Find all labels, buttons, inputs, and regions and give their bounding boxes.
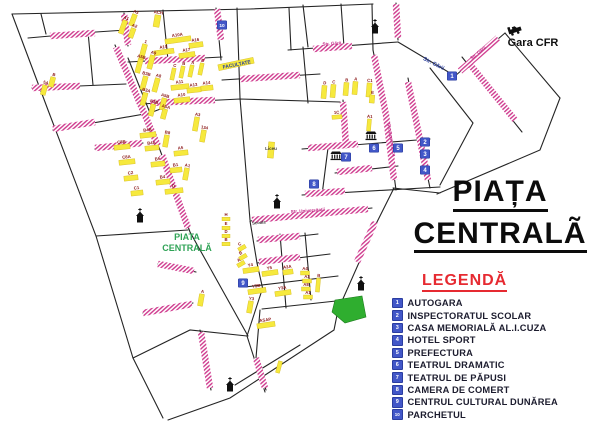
building: B bbox=[315, 273, 321, 292]
building: Y3 bbox=[246, 296, 255, 314]
building-block bbox=[179, 66, 185, 79]
street bbox=[341, 4, 344, 47]
street-name-band bbox=[357, 222, 375, 262]
street-name-band bbox=[305, 191, 345, 194]
building: A1 bbox=[304, 290, 313, 299]
building-label: B8 bbox=[164, 129, 171, 135]
building: A14 bbox=[200, 80, 213, 91]
map-marker-9: 9 bbox=[238, 279, 247, 287]
legend-item-3: 3CASA MEMORIALĂ AL.I.CUZA bbox=[392, 322, 597, 334]
legend: LEGENDĂ 1AUTOGARA2INSPECTORATUL SCOLAR3C… bbox=[392, 272, 597, 421]
building-block bbox=[352, 81, 358, 94]
legend-item-number: 5 bbox=[392, 348, 403, 359]
building-block bbox=[153, 15, 161, 28]
building-block bbox=[165, 188, 183, 195]
map-title: PIAȚA CENTRALÃ bbox=[408, 176, 592, 259]
building-block bbox=[170, 68, 176, 81]
map-marker-5: 5 bbox=[393, 144, 402, 152]
building-block bbox=[160, 109, 167, 120]
street-name-band bbox=[50, 33, 95, 36]
theater-column bbox=[374, 135, 375, 139]
legend-item-number: 10 bbox=[392, 409, 403, 420]
church-roof bbox=[136, 212, 144, 217]
building: A bbox=[352, 76, 359, 95]
building-label: D bbox=[224, 229, 227, 234]
legend-item-label: PREFECTURA bbox=[408, 348, 474, 358]
building: 134 bbox=[198, 124, 209, 142]
building: C2 bbox=[123, 170, 138, 182]
building: A16 bbox=[188, 36, 203, 48]
building-label: C bbox=[173, 63, 177, 69]
street-name-band bbox=[343, 102, 346, 146]
building: C1 bbox=[130, 185, 143, 196]
building-label: B bbox=[182, 61, 186, 67]
title-line-1: PIAȚA bbox=[453, 176, 548, 212]
building: A10A bbox=[164, 31, 191, 45]
building-label: A14 bbox=[202, 80, 211, 86]
building: A bbox=[188, 60, 195, 78]
map-document: A1A3A2ACHA10AA16A10A171A9A5BCBADB3BA8A11… bbox=[0, 0, 600, 430]
building: C8A bbox=[118, 154, 135, 166]
theater-icon bbox=[366, 132, 377, 141]
church-body bbox=[372, 27, 378, 34]
legend-item-label: HOTEL SPORT bbox=[408, 335, 476, 345]
building-label: Y4 bbox=[247, 262, 254, 268]
building-block bbox=[332, 115, 342, 120]
church-icon bbox=[226, 377, 234, 392]
building-label: C8A bbox=[122, 154, 131, 160]
building-block bbox=[198, 63, 204, 76]
street-name-band bbox=[158, 264, 194, 271]
building-block bbox=[248, 287, 267, 294]
legend-heading: LEGENDĂ bbox=[422, 272, 507, 292]
building-block bbox=[124, 175, 138, 181]
building-label: Y3 bbox=[248, 296, 255, 302]
building-label: A1 bbox=[184, 162, 191, 168]
church-roof bbox=[226, 381, 234, 386]
building-block bbox=[304, 295, 313, 299]
building-label: Y5 bbox=[266, 265, 273, 271]
building-block bbox=[275, 289, 292, 296]
legend-item-number: 3 bbox=[392, 323, 403, 334]
building-label: A11 bbox=[175, 79, 184, 85]
legend-item-8: 8CAMERA DE COMERT bbox=[392, 384, 597, 396]
building-label: B bbox=[52, 72, 56, 78]
map-marker-8: 8 bbox=[309, 180, 318, 188]
map-marker-10: 10 bbox=[217, 21, 226, 29]
legend-item-label: TEATRUL DRAMATIC bbox=[408, 360, 505, 370]
legend-item-number: 9 bbox=[392, 397, 403, 408]
building-block bbox=[174, 150, 188, 156]
street-name-band bbox=[256, 358, 265, 388]
building: A1 bbox=[182, 162, 191, 180]
street-name-band bbox=[337, 168, 372, 172]
building-label: A bbox=[191, 60, 195, 66]
legend-item-number: 8 bbox=[392, 385, 403, 396]
building-block bbox=[162, 135, 169, 148]
building: B bbox=[222, 237, 230, 246]
building-label: B bbox=[345, 77, 349, 82]
theater-column bbox=[334, 155, 335, 159]
legend-list: 1AUTOGARA2INSPECTORATUL SCOLAR3CASA MEMO… bbox=[392, 297, 597, 421]
theater-column bbox=[337, 155, 338, 159]
building: B bbox=[343, 77, 350, 96]
building: A3A bbox=[282, 264, 293, 275]
street bbox=[41, 14, 46, 34]
street-name-band bbox=[258, 236, 300, 240]
legend-item-7: 7TEATRUL DE PĂPUSI bbox=[392, 371, 597, 383]
building: A1 bbox=[366, 114, 374, 132]
map-label: Str. Gării bbox=[422, 56, 446, 72]
legend-item-label: CAMERA DE COMERT bbox=[408, 385, 510, 395]
building-block bbox=[343, 82, 349, 95]
street-name-band bbox=[313, 46, 352, 49]
church-roof bbox=[273, 198, 281, 203]
building-label: C2 bbox=[127, 170, 134, 176]
map-label: PIATA bbox=[174, 232, 200, 242]
theater-column bbox=[332, 155, 333, 159]
building-block bbox=[148, 104, 156, 117]
building-block bbox=[321, 85, 327, 98]
theater-base bbox=[331, 159, 342, 160]
street-name-band bbox=[396, 4, 398, 38]
map-label: FACULTATE bbox=[222, 59, 252, 70]
map-marker-2: 2 bbox=[420, 138, 429, 146]
theater-pediment bbox=[331, 152, 342, 155]
legend-item-number: 4 bbox=[392, 335, 403, 346]
park bbox=[332, 296, 366, 323]
park-layer bbox=[332, 296, 366, 323]
building: Y3B bbox=[247, 282, 266, 295]
building-label: D bbox=[201, 58, 205, 64]
marker-number: 10 bbox=[219, 23, 225, 29]
building-label: B4 bbox=[159, 174, 166, 180]
legend-item-1: 1AUTOGARA bbox=[392, 297, 597, 309]
building: A8 bbox=[152, 73, 163, 93]
street bbox=[237, 8, 250, 220]
locomotive bbox=[507, 24, 522, 35]
legend-item-label: TEATRUL DE PĂPUSI bbox=[408, 373, 507, 383]
church-body bbox=[274, 202, 280, 209]
street bbox=[88, 32, 93, 85]
building: A bbox=[197, 289, 205, 307]
legend-item-2: 2INSPECTORATUL SCOLAR bbox=[392, 309, 597, 321]
building-label: A4 bbox=[302, 266, 308, 271]
train-station-icon bbox=[507, 24, 522, 37]
building-label: H bbox=[224, 212, 227, 217]
street-name-band bbox=[143, 304, 192, 313]
building-block bbox=[171, 84, 189, 91]
street-name-band bbox=[468, 62, 515, 120]
building-block bbox=[199, 130, 206, 143]
church-body bbox=[227, 385, 233, 392]
map-marker-4: 4 bbox=[420, 166, 429, 174]
building-label: C8B bbox=[117, 139, 126, 145]
building-label: A10 bbox=[177, 92, 186, 98]
legend-item-label: CENTRUL CULTURAL DUNĂREA bbox=[408, 397, 558, 407]
street-name-band bbox=[408, 82, 428, 180]
building: ACH bbox=[151, 9, 163, 28]
building: A10 bbox=[153, 43, 174, 56]
church-cross bbox=[359, 276, 362, 280]
building-label: A1 bbox=[305, 290, 311, 295]
building-label: C1 bbox=[367, 78, 374, 84]
building-block bbox=[192, 117, 199, 132]
legend-item-6: 6TEATRUL DRAMATIC bbox=[392, 359, 597, 371]
building-block bbox=[262, 269, 279, 276]
building-label: D bbox=[172, 183, 176, 188]
theater-icon bbox=[331, 152, 342, 161]
building-label: A bbox=[354, 76, 358, 81]
street bbox=[303, 5, 308, 47]
legend-item-9: 9CENTRUL CULTURAL DUNĂREA bbox=[392, 396, 597, 408]
street bbox=[12, 4, 373, 14]
map-marker-1: 1 bbox=[447, 72, 456, 80]
building-label: C1 bbox=[133, 185, 140, 191]
building-block bbox=[222, 242, 230, 246]
building: B1 bbox=[169, 162, 182, 173]
building-block bbox=[170, 167, 182, 173]
map-marker-3: 3 bbox=[420, 150, 429, 158]
building: A5 bbox=[173, 145, 188, 157]
theater-column bbox=[372, 135, 373, 139]
theater-column bbox=[339, 155, 340, 159]
legend-item-label: PARCHETUL bbox=[408, 410, 466, 420]
building: B8 bbox=[162, 129, 171, 147]
street bbox=[235, 345, 300, 385]
building-block bbox=[131, 190, 143, 196]
title-line-2: CENTRALÃ bbox=[414, 218, 587, 254]
street-name-band bbox=[201, 332, 210, 388]
building-block bbox=[201, 85, 213, 91]
legend-item-label: AUTOGARA bbox=[408, 298, 463, 308]
building-block bbox=[369, 95, 375, 103]
building-label: 1C bbox=[334, 110, 340, 115]
building-block bbox=[246, 301, 253, 314]
building-block bbox=[152, 78, 160, 93]
building: Y5 bbox=[261, 264, 278, 276]
theater-column bbox=[367, 135, 368, 139]
map-marker-6: 6 bbox=[369, 144, 378, 152]
church-cross bbox=[373, 19, 376, 23]
map-label: CENTRALĂ bbox=[162, 243, 212, 253]
building-label: E bbox=[225, 221, 228, 226]
street bbox=[398, 33, 505, 76]
church-body bbox=[358, 284, 364, 291]
building-label: B bbox=[224, 237, 227, 242]
building-block bbox=[188, 65, 194, 78]
legend-item-number: 7 bbox=[392, 372, 403, 383]
map-marker-7: 7 bbox=[341, 153, 350, 161]
building: Y3A bbox=[274, 284, 291, 296]
building-label: A8 bbox=[303, 282, 309, 287]
theater-pediment bbox=[366, 132, 377, 135]
building-block bbox=[182, 168, 189, 181]
legend-item-number: 2 bbox=[392, 310, 403, 321]
street-name-band bbox=[240, 75, 300, 79]
street bbox=[262, 301, 336, 309]
building-label: A13 bbox=[189, 82, 198, 88]
building-label: A3 bbox=[304, 274, 310, 279]
street bbox=[250, 221, 263, 290]
building-block bbox=[330, 84, 336, 97]
building-label: D bbox=[323, 80, 327, 85]
church-icon bbox=[136, 208, 144, 223]
legend-item-number: 6 bbox=[392, 360, 403, 371]
building-block bbox=[156, 179, 170, 185]
legend-item-5: 5PREFECTURA bbox=[392, 347, 597, 359]
street bbox=[133, 330, 247, 358]
street-name-band bbox=[53, 122, 95, 129]
church-icon bbox=[273, 194, 281, 209]
building-label: B4A bbox=[147, 140, 156, 146]
street-name-band bbox=[32, 86, 80, 88]
building: D bbox=[321, 80, 328, 99]
building-block bbox=[119, 159, 135, 166]
building: B bbox=[179, 61, 186, 79]
building-block bbox=[315, 278, 320, 292]
building-label: E bbox=[371, 90, 374, 95]
church-cross bbox=[228, 377, 231, 381]
church-cross bbox=[138, 208, 141, 212]
building-label: B4B bbox=[143, 127, 152, 133]
church-cross bbox=[275, 194, 278, 198]
building-label: B bbox=[317, 273, 321, 278]
map-label: Gara CFR bbox=[508, 37, 559, 49]
street bbox=[289, 8, 291, 50]
theater-base bbox=[366, 139, 377, 140]
map-label: Liceu bbox=[265, 146, 277, 151]
building-label: A5 bbox=[177, 145, 184, 151]
street-name-band bbox=[374, 55, 394, 180]
building: H bbox=[222, 212, 230, 221]
building-block bbox=[154, 48, 175, 56]
legend-item-4: 4HOTEL SPORT bbox=[392, 334, 597, 346]
building-label: B1 bbox=[172, 162, 179, 168]
street-name-band bbox=[308, 144, 358, 148]
building-block bbox=[366, 119, 371, 131]
legend-item-number: 1 bbox=[392, 298, 403, 309]
church-roof bbox=[357, 280, 365, 285]
building-label: A1 bbox=[367, 114, 374, 120]
building-label: 1 bbox=[144, 39, 148, 45]
church-icon bbox=[357, 276, 365, 291]
building: ASAP bbox=[256, 316, 275, 329]
church-body bbox=[137, 216, 143, 223]
building: C bbox=[330, 79, 337, 98]
street bbox=[322, 148, 328, 195]
map-label: Scoala bbox=[252, 219, 267, 225]
legend-item-10: 10PARCHETUL bbox=[392, 409, 597, 421]
building-block bbox=[197, 294, 204, 307]
building-label: A3 bbox=[195, 112, 202, 118]
theater-column bbox=[369, 135, 370, 139]
building-label: C bbox=[332, 79, 336, 84]
street-name-band bbox=[259, 257, 300, 262]
legend-item-label: CASA MEMORIALĂ AL.I.CUZA bbox=[408, 323, 547, 333]
legend-item-label: INSPECTORATUL SCOLAR bbox=[408, 311, 532, 321]
building-block bbox=[243, 266, 260, 273]
building: C bbox=[170, 63, 177, 81]
building-label: A bbox=[201, 289, 205, 294]
